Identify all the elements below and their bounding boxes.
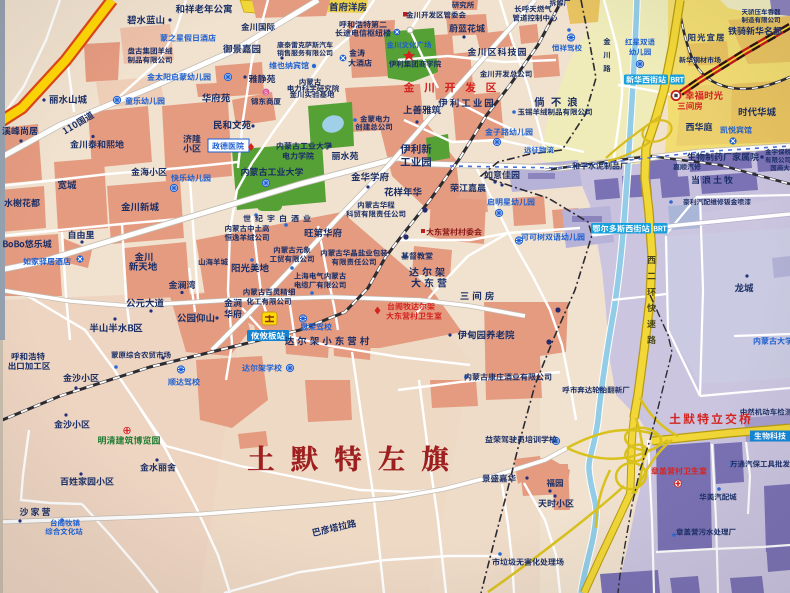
svg-text:S: S [264,91,268,97]
